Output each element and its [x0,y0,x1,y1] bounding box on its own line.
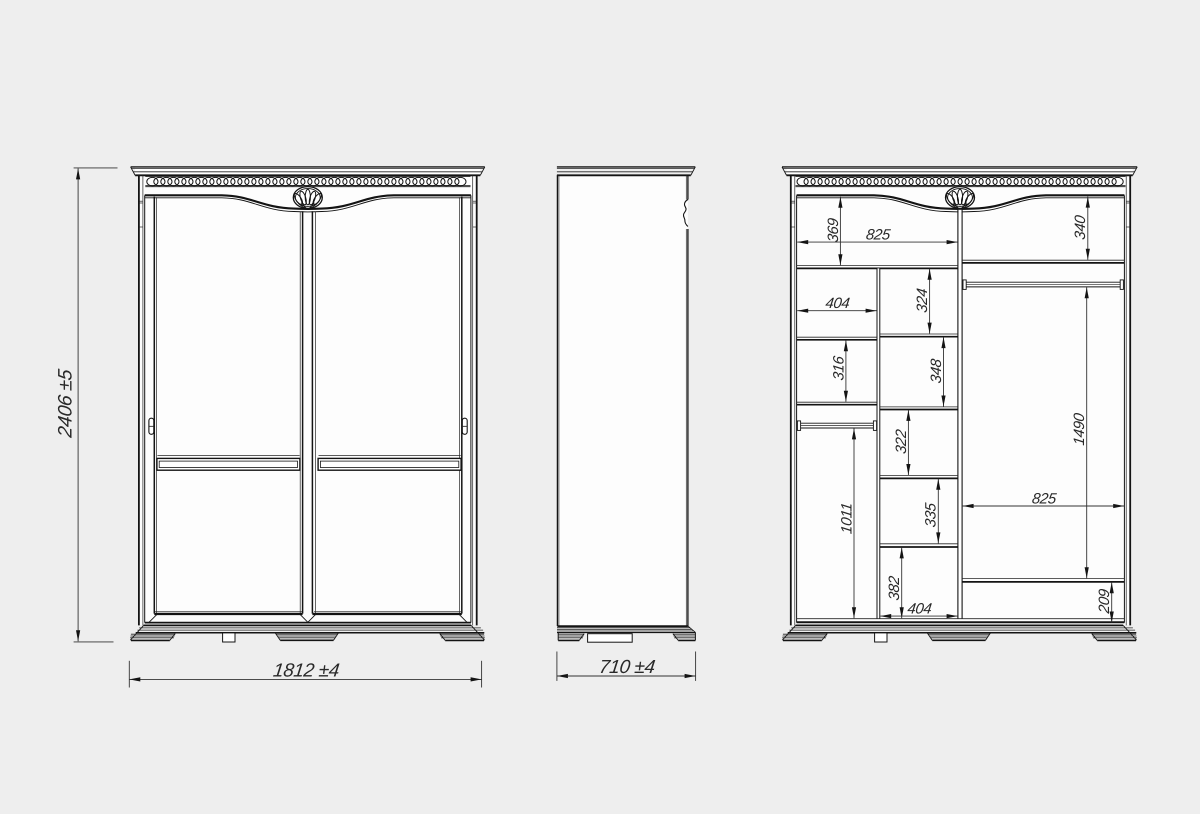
svg-text:382: 382 [886,574,903,601]
svg-text:322: 322 [893,428,910,455]
svg-text:348: 348 [928,357,945,384]
svg-text:316: 316 [830,354,847,381]
svg-text:404: 404 [825,295,851,312]
svg-text:209: 209 [1096,587,1113,615]
svg-text:1490: 1490 [1071,412,1088,447]
svg-text:369: 369 [825,216,842,243]
svg-text:1812 ±4: 1812 ±4 [272,660,340,681]
svg-text:335: 335 [923,501,940,528]
svg-text:710 ±4: 710 ±4 [598,657,656,678]
svg-text:404: 404 [907,601,933,618]
svg-text:324: 324 [914,288,931,314]
svg-text:2406 ±5: 2406 ±5 [55,368,77,440]
svg-text:1011: 1011 [838,502,855,535]
svg-text:340: 340 [1072,214,1089,241]
svg-text:825: 825 [1031,490,1058,507]
svg-text:825: 825 [865,227,892,244]
